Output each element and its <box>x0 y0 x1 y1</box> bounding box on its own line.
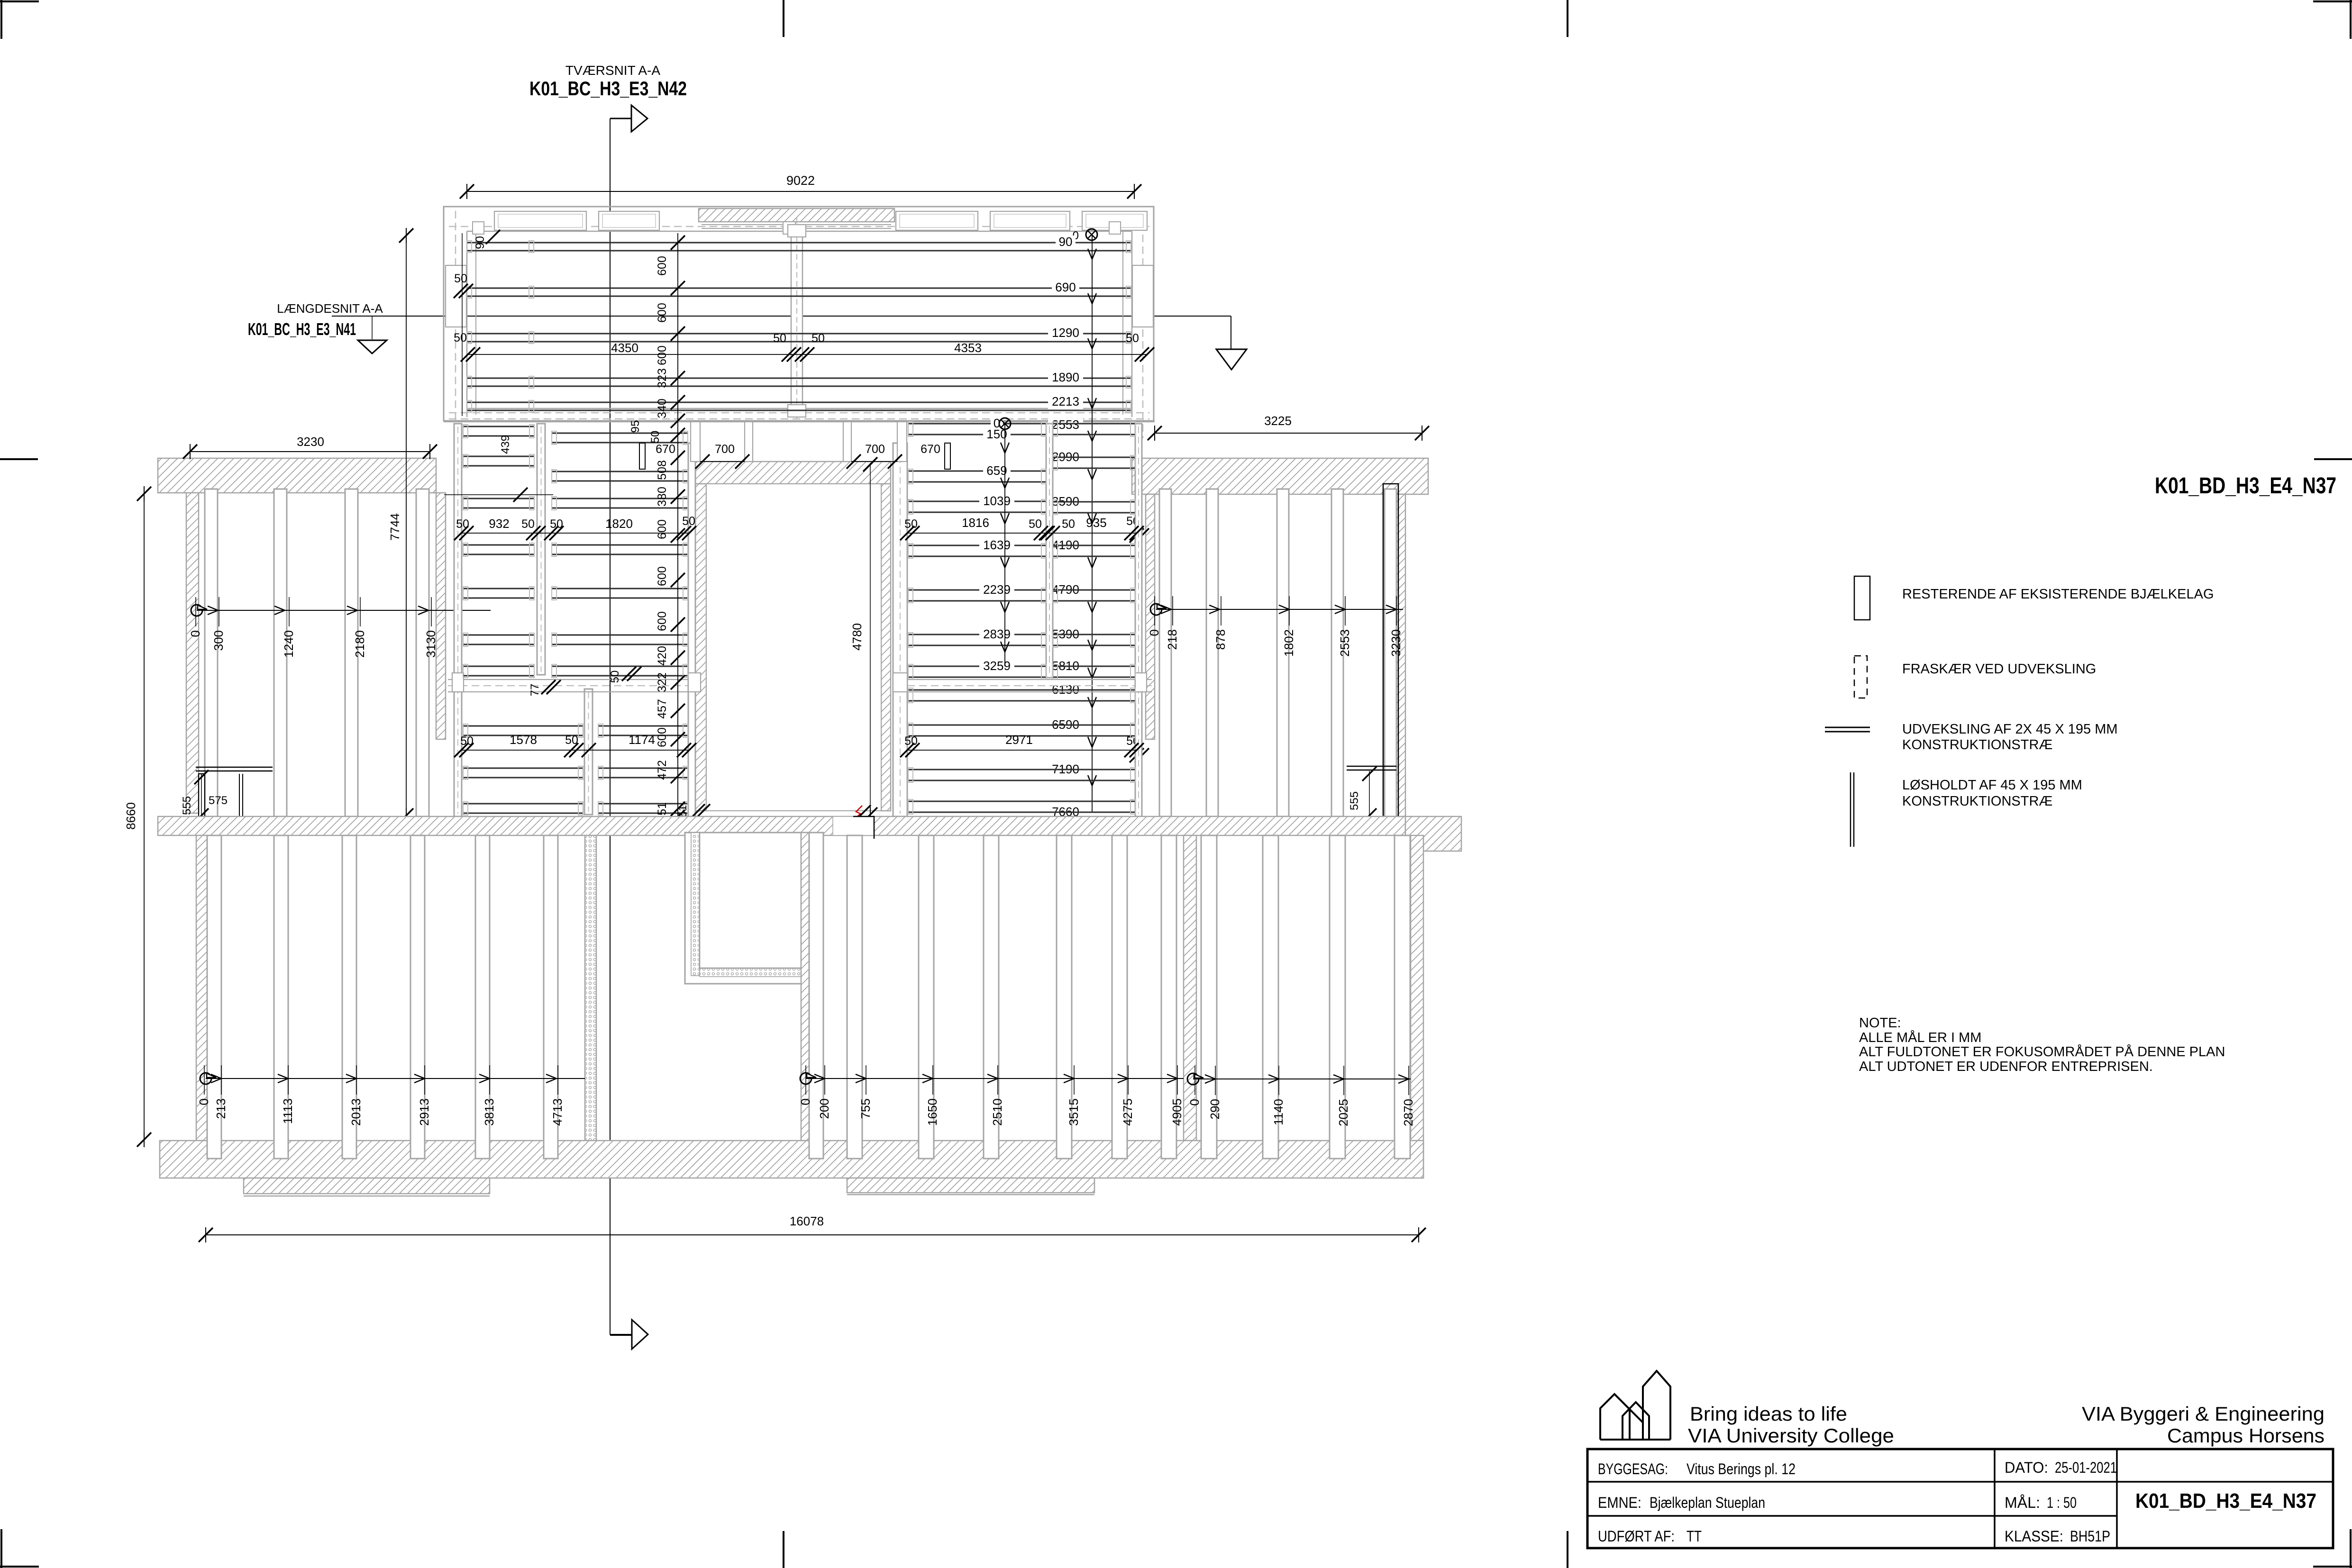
svg-text:50: 50 <box>1029 517 1042 531</box>
svg-text:Vitus Berings pl. 12: Vitus Berings pl. 12 <box>1687 1460 1796 1477</box>
svg-text:50: 50 <box>811 332 825 345</box>
svg-text:ALT FULDTONET ER FOKUSOMRÅDET: ALT FULDTONET ER FOKUSOMRÅDET PÅ DENNE P… <box>1859 1044 2225 1060</box>
svg-text:BYGGESAG:: BYGGESAG: <box>1598 1460 1668 1477</box>
svg-text:50: 50 <box>649 431 662 444</box>
svg-text:K01_BC_H3_E3_N42: K01_BC_H3_E3_N42 <box>529 77 687 100</box>
svg-text:2013: 2013 <box>349 1098 363 1126</box>
svg-text:1113: 1113 <box>281 1098 295 1124</box>
svg-text:4780: 4780 <box>850 623 864 651</box>
svg-text:VIA University College: VIA University College <box>1688 1424 1894 1447</box>
svg-text:FRASKÆR VED UDVEKSLING: FRASKÆR VED UDVEKSLING <box>1902 662 2096 677</box>
svg-text:50: 50 <box>565 734 578 747</box>
svg-text:1639: 1639 <box>983 538 1011 552</box>
svg-text:508: 508 <box>656 460 669 480</box>
svg-text:Bjælkeplan Stueplan: Bjælkeplan Stueplan <box>1650 1494 1765 1511</box>
svg-text:700: 700 <box>865 443 885 456</box>
svg-text:1174: 1174 <box>629 733 655 747</box>
svg-text:90: 90 <box>1059 235 1073 249</box>
svg-text:DATO:: DATO: <box>2005 1459 2048 1476</box>
svg-text:213: 213 <box>214 1098 228 1119</box>
svg-text:3225: 3225 <box>1264 414 1292 428</box>
svg-text:4275: 4275 <box>1121 1098 1135 1126</box>
svg-text:700: 700 <box>715 443 735 456</box>
svg-text:3230: 3230 <box>1389 629 1403 657</box>
svg-text:600: 600 <box>656 727 669 747</box>
svg-text:420: 420 <box>656 646 669 666</box>
svg-text:77: 77 <box>529 684 541 697</box>
svg-text:1039: 1039 <box>983 494 1011 508</box>
svg-text:1290: 1290 <box>1052 326 1079 340</box>
svg-text:200: 200 <box>817 1098 831 1119</box>
svg-text:50: 50 <box>609 671 621 683</box>
svg-text:322: 322 <box>656 672 669 692</box>
svg-text:KONSTRUKTIONSTRÆ: KONSTRUKTIONSTRÆ <box>1902 794 2052 809</box>
svg-text:0: 0 <box>1187 1099 1202 1106</box>
svg-text:1140: 1140 <box>1271 1099 1285 1125</box>
svg-text:50: 50 <box>682 515 695 528</box>
svg-text:690: 690 <box>1055 280 1076 294</box>
svg-text:51: 51 <box>656 802 669 816</box>
svg-text:3259: 3259 <box>983 659 1011 673</box>
svg-text:600: 600 <box>656 256 669 276</box>
svg-text:K01_BD_H3_E4_N37: K01_BD_H3_E4_N37 <box>2155 473 2336 498</box>
svg-text:1578: 1578 <box>510 733 537 747</box>
svg-text:3813: 3813 <box>482 1098 496 1126</box>
svg-text:MÅL:: MÅL: <box>2005 1494 2040 1511</box>
svg-text:9022: 9022 <box>786 173 815 188</box>
svg-text:670: 670 <box>656 443 675 456</box>
svg-text:7744: 7744 <box>388 513 402 541</box>
svg-text:878: 878 <box>1213 629 1228 650</box>
svg-text:KLASSE:: KLASSE: <box>2005 1528 2063 1545</box>
svg-text:KONSTRUKTIONSTRÆ: KONSTRUKTIONSTRÆ <box>1902 737 2052 752</box>
svg-text:LØSHOLDT AF 45 X 195 MM: LØSHOLDT AF 45 X 195 MM <box>1902 778 2082 793</box>
svg-text:218: 218 <box>1165 629 1179 650</box>
svg-text:50: 50 <box>456 517 469 531</box>
svg-text:UDVEKSLING AF 2X 45 X 195 MM: UDVEKSLING AF 2X 45 X 195 MM <box>1902 722 2118 737</box>
svg-text:1820: 1820 <box>605 517 633 531</box>
svg-text:2839: 2839 <box>983 627 1011 641</box>
svg-text:380: 380 <box>656 487 669 507</box>
svg-text:Bring ideas to life: Bring ideas to life <box>1690 1403 1847 1425</box>
svg-text:555: 555 <box>181 796 193 815</box>
svg-text:50: 50 <box>454 272 467 285</box>
svg-text:472: 472 <box>656 760 669 780</box>
svg-text:2510: 2510 <box>990 1098 1004 1126</box>
svg-text:NOTE:: NOTE: <box>1859 1015 1901 1031</box>
svg-text:50: 50 <box>1062 517 1075 531</box>
svg-text:457: 457 <box>656 699 669 719</box>
svg-text:439: 439 <box>499 435 512 454</box>
svg-text:2025: 2025 <box>1336 1099 1350 1126</box>
svg-text:600: 600 <box>656 566 669 586</box>
svg-text:1650: 1650 <box>925 1098 939 1126</box>
svg-text:50: 50 <box>773 332 786 345</box>
svg-text:4353: 4353 <box>954 341 982 355</box>
svg-text:LÆNGDESNIT A-A: LÆNGDESNIT A-A <box>277 301 383 316</box>
svg-text:K01_BD_H3_E4_N37: K01_BD_H3_E4_N37 <box>2135 1489 2316 1513</box>
svg-text:2553: 2553 <box>1338 629 1352 657</box>
svg-text:TT: TT <box>1687 1528 1702 1545</box>
svg-text:TVÆRSNIT A-A: TVÆRSNIT A-A <box>565 63 661 78</box>
svg-text:50: 50 <box>904 517 918 531</box>
svg-text:340: 340 <box>656 399 669 418</box>
svg-text:RESTERENDE AF EKSISTERENDE BJÆ: RESTERENDE AF EKSISTERENDE BJÆLKELAG <box>1902 587 2214 602</box>
svg-text:600: 600 <box>656 345 669 365</box>
svg-text:935: 935 <box>1086 516 1106 530</box>
svg-text:659: 659 <box>986 463 1007 478</box>
svg-text:2913: 2913 <box>417 1098 431 1126</box>
svg-text:K01_BC_H3_E3_N41: K01_BC_H3_E3_N41 <box>248 319 356 339</box>
svg-text:0: 0 <box>1147 629 1161 636</box>
svg-text:2213: 2213 <box>1052 394 1079 408</box>
svg-text:1 : 50: 1 : 50 <box>2047 1494 2077 1511</box>
svg-text:0: 0 <box>188 630 202 637</box>
svg-text:50: 50 <box>904 734 918 748</box>
svg-text:BH51P: BH51P <box>2070 1528 2110 1545</box>
svg-text:90: 90 <box>474 236 487 249</box>
svg-text:4905: 4905 <box>1170 1098 1184 1126</box>
svg-text:16078: 16078 <box>790 1214 824 1228</box>
svg-text:300: 300 <box>211 630 226 651</box>
svg-text:VIA Byggeri & Engineering: VIA Byggeri & Engineering <box>2082 1403 2325 1425</box>
svg-text:95: 95 <box>629 420 642 433</box>
svg-text:1240: 1240 <box>282 630 296 658</box>
svg-text:0: 0 <box>197 1098 211 1105</box>
svg-text:2870: 2870 <box>1401 1099 1415 1126</box>
svg-text:1816: 1816 <box>962 516 989 530</box>
svg-text:25-01-2021: 25-01-2021 <box>2055 1459 2117 1476</box>
svg-text:600: 600 <box>656 611 669 631</box>
svg-text:0: 0 <box>798 1098 812 1105</box>
svg-text:ALLE MÅL ER I MM: ALLE MÅL ER I MM <box>1859 1030 1981 1045</box>
svg-text:4350: 4350 <box>611 341 638 355</box>
svg-text:3130: 3130 <box>424 630 438 658</box>
svg-text:2239: 2239 <box>983 582 1011 597</box>
svg-text:50: 50 <box>460 734 474 748</box>
svg-text:ALT UDTONET ER UDENFOR ENTREPR: ALT UDTONET ER UDENFOR ENTREPRISEN. <box>1859 1059 2153 1074</box>
svg-text:3230: 3230 <box>297 435 324 449</box>
svg-text:50: 50 <box>550 517 563 531</box>
svg-text:1802: 1802 <box>1282 629 1296 657</box>
svg-text:600: 600 <box>656 519 669 539</box>
svg-text:2180: 2180 <box>353 630 367 658</box>
svg-text:EMNE:: EMNE: <box>1598 1494 1641 1511</box>
svg-text:50: 50 <box>521 517 535 531</box>
svg-text:8660: 8660 <box>124 802 138 830</box>
svg-text:4713: 4713 <box>550 1098 565 1126</box>
svg-text:2553: 2553 <box>1052 417 1079 432</box>
svg-text:555: 555 <box>1348 791 1361 810</box>
svg-text:51: 51 <box>676 805 689 818</box>
svg-text:50: 50 <box>454 331 467 344</box>
svg-text:670: 670 <box>921 443 940 456</box>
svg-text:323: 323 <box>656 368 669 388</box>
svg-text:575: 575 <box>209 794 228 807</box>
svg-text:290: 290 <box>1208 1099 1222 1119</box>
svg-text:1890: 1890 <box>1052 370 1079 384</box>
svg-text:2971: 2971 <box>1005 733 1033 747</box>
svg-text:932: 932 <box>489 517 509 531</box>
svg-text:3515: 3515 <box>1067 1098 1081 1126</box>
svg-text:UDFØRT AF:: UDFØRT AF: <box>1598 1528 1675 1545</box>
svg-text:755: 755 <box>858 1098 873 1119</box>
svg-text:600: 600 <box>656 303 669 323</box>
svg-text:Campus Horsens: Campus Horsens <box>2167 1424 2325 1447</box>
svg-text:50: 50 <box>1126 332 1139 345</box>
